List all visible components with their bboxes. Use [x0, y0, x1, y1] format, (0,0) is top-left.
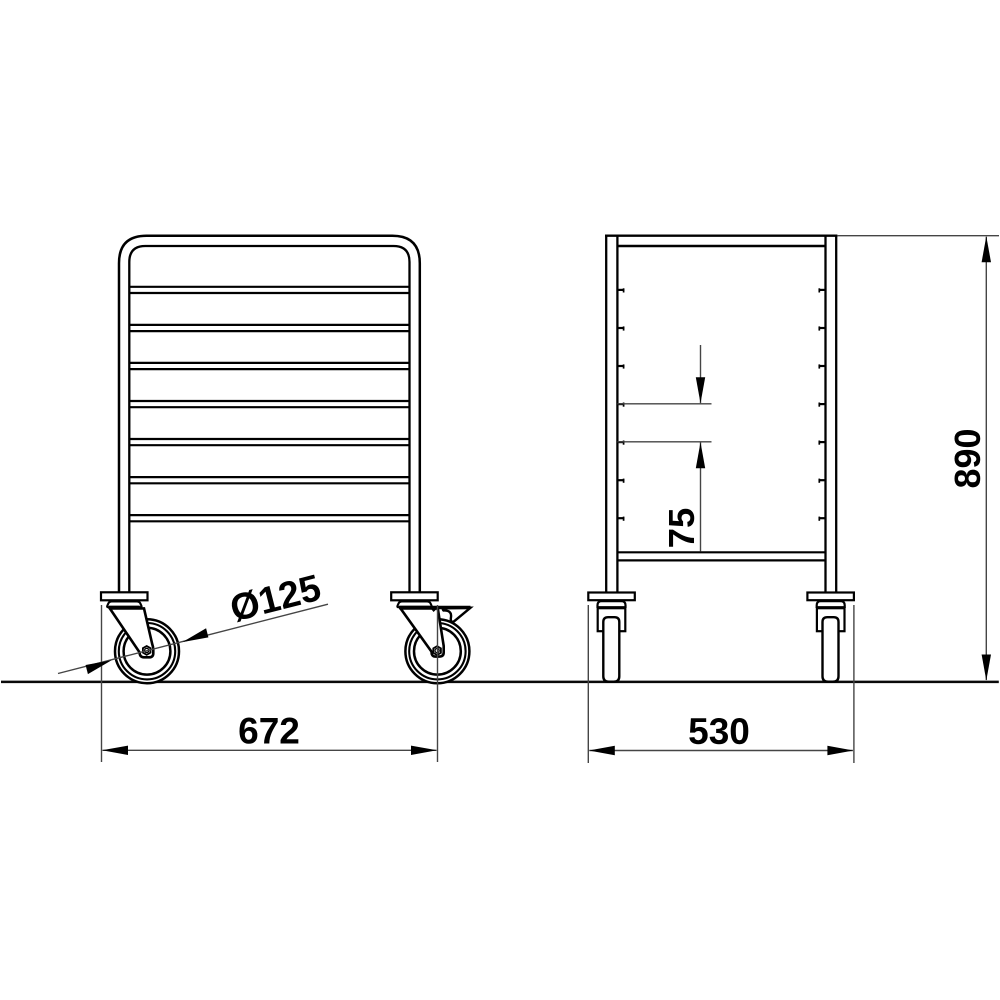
svg-text:890: 890 [947, 428, 988, 488]
svg-text:530: 530 [688, 711, 750, 752]
svg-text:672: 672 [238, 711, 300, 752]
svg-text:75: 75 [661, 508, 702, 549]
